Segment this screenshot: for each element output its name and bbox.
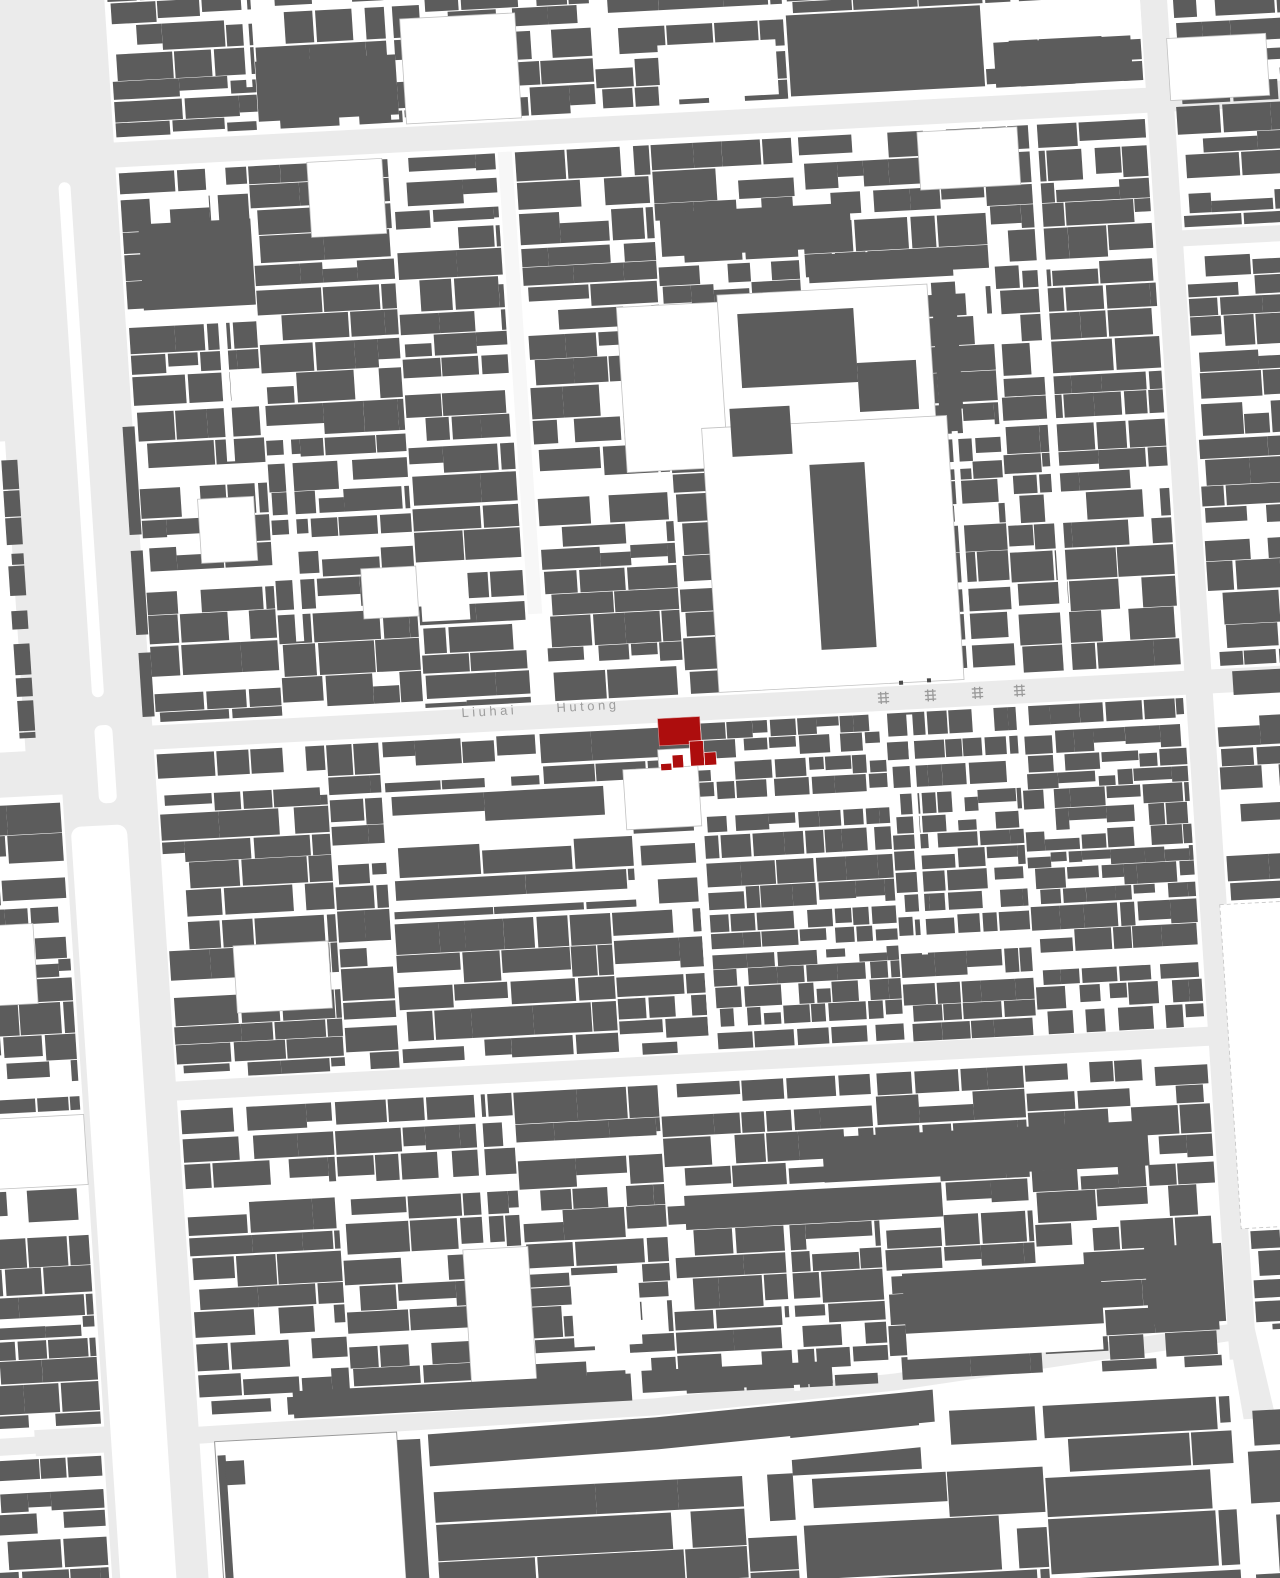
svg-text:Liuhai: Liuhai — [461, 702, 518, 720]
